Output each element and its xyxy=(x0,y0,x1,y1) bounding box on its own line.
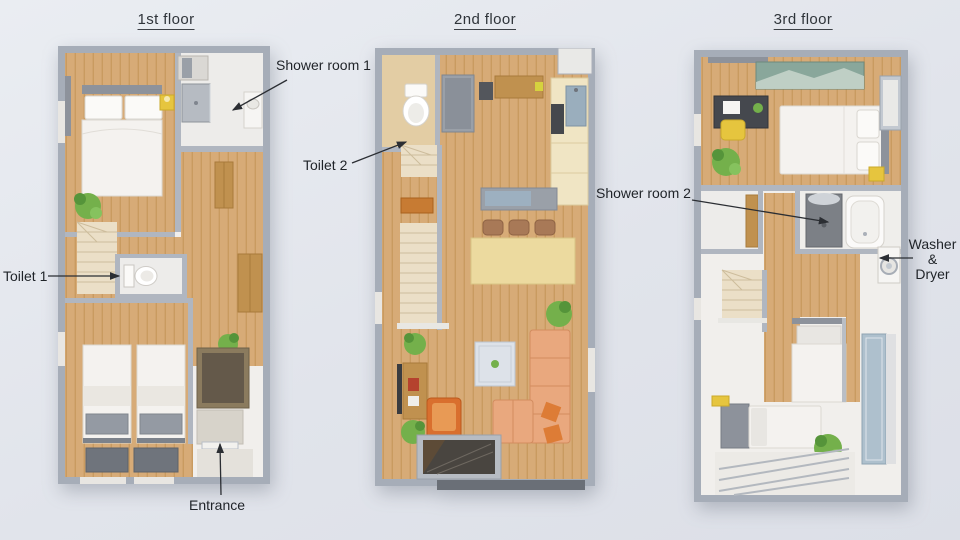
wall-painting xyxy=(756,62,864,89)
stool xyxy=(712,396,729,406)
cabinet xyxy=(178,56,208,80)
double-bed xyxy=(82,85,162,196)
dining-table xyxy=(471,238,575,284)
label-washer-dryer: Washer & Dryer xyxy=(905,237,960,282)
label-toilet-1: Toilet 1 xyxy=(3,268,47,284)
plant xyxy=(546,301,572,327)
label-entrance: Entrance xyxy=(189,497,245,513)
single-bed-vertical xyxy=(792,318,846,402)
label-shower-room-2: Shower room 2 xyxy=(596,185,691,201)
floorplan-2nd-floor xyxy=(375,48,595,493)
stairwell-skylight xyxy=(417,435,501,479)
balcony-ledge xyxy=(437,480,585,490)
bathtub xyxy=(846,196,884,248)
wardrobe xyxy=(215,162,233,208)
single-bed-horizontal xyxy=(721,404,821,448)
stove xyxy=(551,104,564,134)
twin-bed-left xyxy=(83,345,131,443)
tv-cabinet xyxy=(397,363,427,419)
window-bay xyxy=(880,76,901,130)
trash-bin xyxy=(479,82,493,100)
balcony-window xyxy=(862,334,896,464)
double-bed xyxy=(780,106,889,174)
label-washer-line2: & xyxy=(905,252,960,267)
stairs xyxy=(397,145,449,330)
floor-title-1st: 1st floor xyxy=(138,11,195,30)
rug xyxy=(475,342,515,386)
fridge xyxy=(442,75,474,132)
label-washer-line3: Dryer xyxy=(905,267,960,282)
dining-bench xyxy=(481,188,557,210)
vanity-sink xyxy=(244,92,262,128)
entry-closet xyxy=(238,254,262,312)
shower-tray xyxy=(182,84,210,122)
label-washer-line1: Washer xyxy=(905,237,960,252)
kitchen-counter xyxy=(551,78,588,205)
deck-floor xyxy=(715,449,855,495)
label-shower-room-1: Shower room 1 xyxy=(276,57,371,73)
armchair xyxy=(427,398,461,440)
floorplan-1st-floor xyxy=(58,46,270,484)
storage-room xyxy=(701,191,763,253)
genkan-mat xyxy=(197,348,249,408)
tv xyxy=(397,364,402,414)
nightstand-lamp xyxy=(160,95,174,110)
dining-chairs xyxy=(483,220,555,235)
nightstand xyxy=(869,167,884,181)
stairs xyxy=(718,270,767,332)
toilet-1-room xyxy=(115,254,187,298)
floor-title-3rd: 3rd floor xyxy=(774,11,833,30)
toilet-2-room xyxy=(382,55,440,152)
stairs xyxy=(77,222,117,294)
wood-shelf xyxy=(495,76,543,98)
label-toilet-2: Toilet 2 xyxy=(303,157,347,173)
desk-chair xyxy=(721,120,745,140)
washer-dryer xyxy=(878,247,900,283)
floorplan-diagram: 1st floor 2nd floor 3rd floor xyxy=(0,0,960,540)
floor-title-2nd: 2nd floor xyxy=(454,11,516,30)
shower-room-2 xyxy=(795,191,901,253)
floorplan-3rd-floor xyxy=(694,50,908,502)
twin-bed-right xyxy=(137,345,185,443)
plant xyxy=(404,333,426,355)
